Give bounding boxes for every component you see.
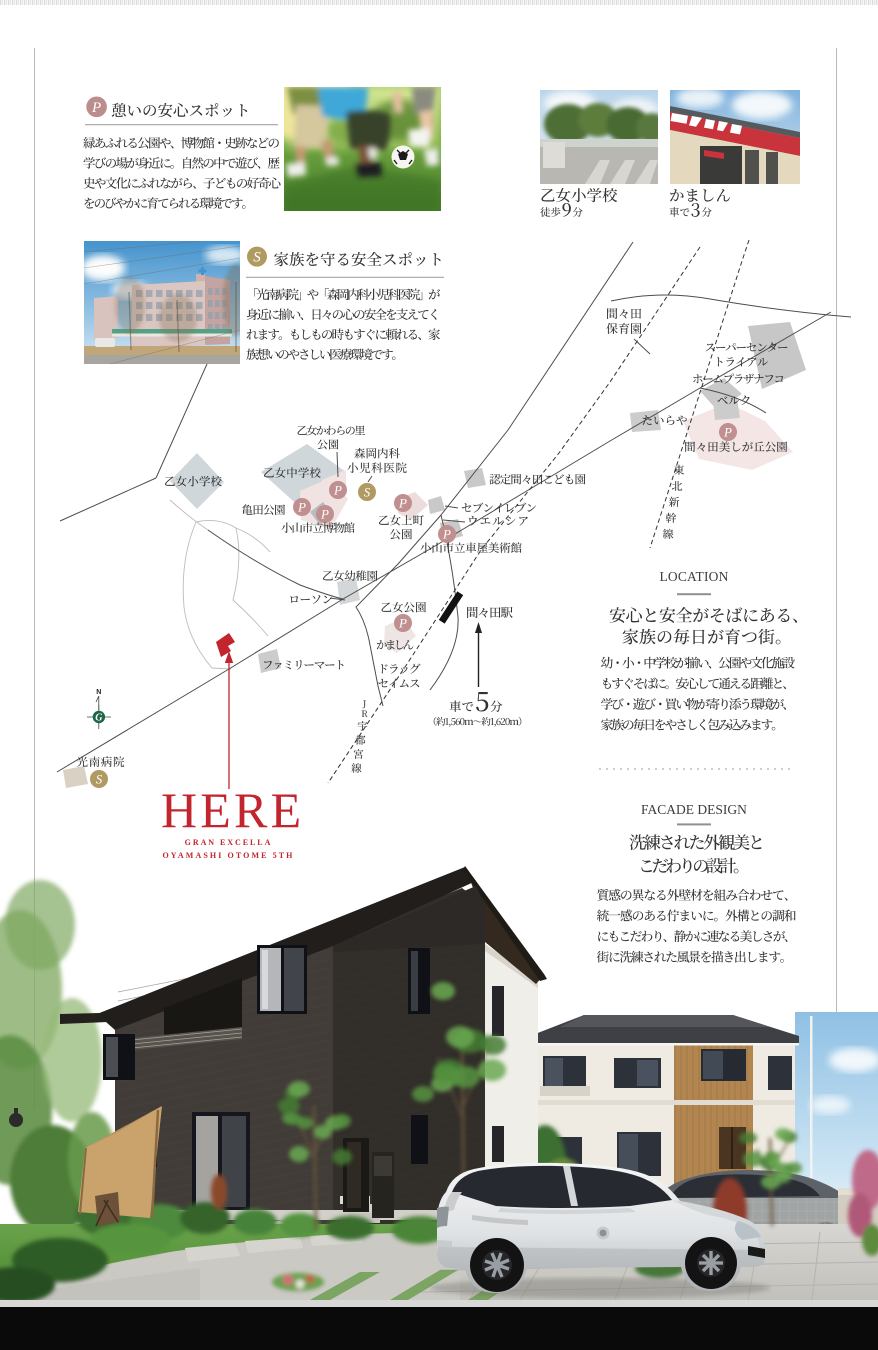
svg-text:P: P [91, 100, 101, 116]
svg-text:P: P [723, 424, 732, 439]
svg-text:G: G [95, 713, 103, 724]
svg-text:P: P [398, 615, 407, 630]
svg-text:P: P [333, 482, 342, 497]
svg-text:P: P [297, 499, 306, 514]
svg-text:S: S [96, 771, 103, 786]
svg-text:P: P [398, 495, 407, 510]
svg-text:S: S [364, 484, 371, 499]
svg-text:P: P [320, 506, 329, 521]
svg-text:N: N [96, 689, 101, 696]
svg-text:S: S [253, 250, 261, 266]
svg-text:P: P [442, 526, 451, 541]
